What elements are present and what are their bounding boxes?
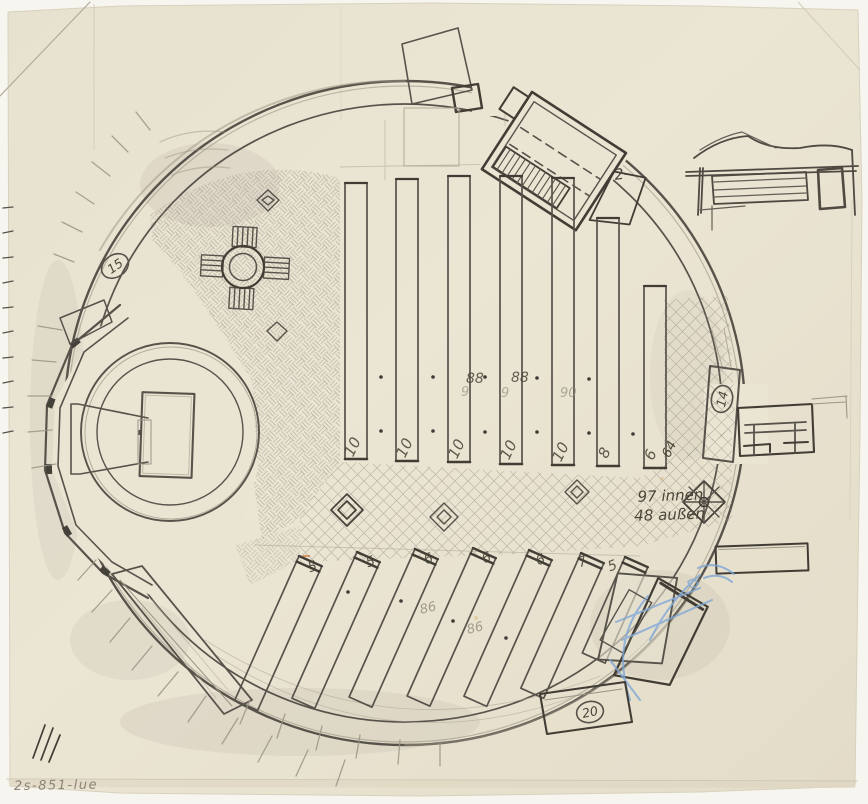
annex-label: 2-	[613, 164, 630, 184]
aisle-number: 88	[511, 370, 529, 386]
capacity-line2: 48 außen	[634, 504, 705, 524]
aisle-number-faint: 9	[461, 385, 469, 400]
capacity-line1: 97 innen	[637, 485, 703, 505]
floor-plan-sketch: 2- 10 10 10 10	[0, 0, 868, 804]
capacity-note: 97 innen 48 außen	[633, 485, 705, 524]
scanned-sketch-sheet: 2- 10 10 10 10	[0, 0, 868, 804]
aisle-number-faint: 9	[501, 386, 509, 401]
inventory-number: 2s-851-lue	[14, 778, 98, 794]
aisle-number-faint: 90	[560, 386, 577, 401]
